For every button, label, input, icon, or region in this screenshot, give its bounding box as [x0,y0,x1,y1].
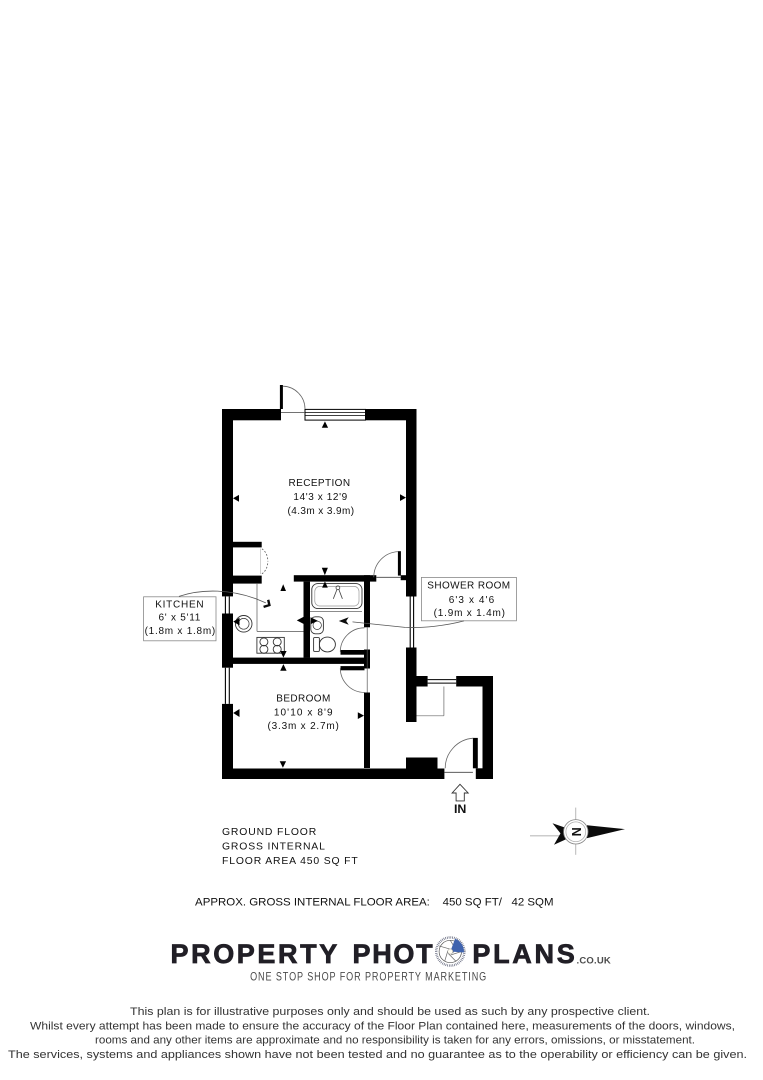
svg-text:6'3 x 4'6: 6'3 x 4'6 [449,595,496,606]
svg-text:14'3 x 12'9: 14'3 x 12'9 [293,492,347,503]
svg-text:APPROX. GROSS INTERNAL FLOOR A: APPROX. GROSS INTERNAL FLOOR AREA: 450 S… [195,897,554,909]
svg-text:FLOOR AREA 450 SQ FT: FLOOR AREA 450 SQ FT [222,856,359,867]
svg-text:PLANS: PLANS [472,939,577,969]
svg-text:SHOWER ROOM: SHOWER ROOM [427,580,510,591]
svg-text:IN: IN [454,802,466,816]
svg-text:GROSS INTERNAL: GROSS INTERNAL [222,842,326,853]
svg-text:(3.3m x 2.7m): (3.3m x 2.7m) [268,721,340,732]
svg-text:The services, systems and appl: The services, systems and appliances sho… [8,1049,747,1061]
svg-text:.CO.UK: .CO.UK [577,956,611,967]
svg-text:This plan is for illustrative: This plan is for illustrative purposes o… [130,1006,650,1018]
svg-text:RECEPTION: RECEPTION [289,478,351,489]
svg-text:Whilst every attempt has been: Whilst every attempt has been made to en… [30,1020,735,1032]
svg-text:GROUND FLOOR: GROUND FLOOR [222,827,317,838]
svg-text:PROPERTY: PROPERTY [171,939,340,969]
svg-text:PHOT: PHOT [353,939,435,969]
svg-text:(4.3m x 3.9m): (4.3m x 3.9m) [288,506,355,517]
svg-text:N: N [569,827,583,836]
svg-text:(1.8m x 1.8m): (1.8m x 1.8m) [145,626,216,637]
svg-text:6' x 5'11: 6' x 5'11 [158,613,201,624]
svg-text:BEDROOM: BEDROOM [276,694,330,705]
svg-text:ONE STOP SHOP FOR PROPERTY MAR: ONE STOP SHOP FOR PROPERTY MARKETING [250,969,487,983]
svg-text:10'10 x 8'9: 10'10 x 8'9 [274,707,334,718]
svg-text:(1.9m x 1.4m): (1.9m x 1.4m) [434,608,506,619]
svg-text:KITCHEN: KITCHEN [155,600,204,611]
svg-text:rooms and any other items are: rooms and any other items are approximat… [95,1035,695,1047]
